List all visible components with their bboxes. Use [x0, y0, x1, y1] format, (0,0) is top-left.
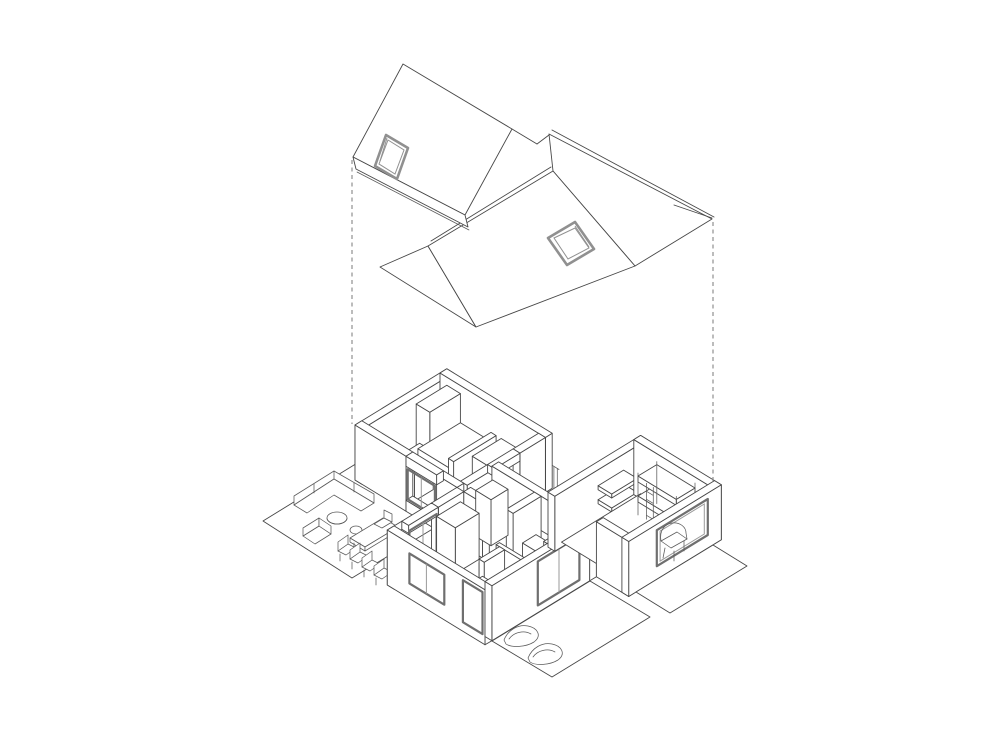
- exploded-axonometric-house-drawing: [0, 0, 1000, 750]
- main-wall-southeast: [485, 582, 492, 641]
- nw-wall-northeast: [545, 433, 552, 492]
- roof-left-gable: [353, 64, 512, 230]
- left-roof-slope: [353, 64, 512, 215]
- valley-line: [537, 135, 549, 144]
- valley-line: [512, 129, 537, 144]
- east-wall-southeast: [622, 537, 629, 596]
- east-wall-northwest: [548, 492, 555, 551]
- stove-flue-cap: [552, 465, 559, 469]
- drawing-canvas: Exploded axonometric line drawing of a s…: [0, 0, 1000, 750]
